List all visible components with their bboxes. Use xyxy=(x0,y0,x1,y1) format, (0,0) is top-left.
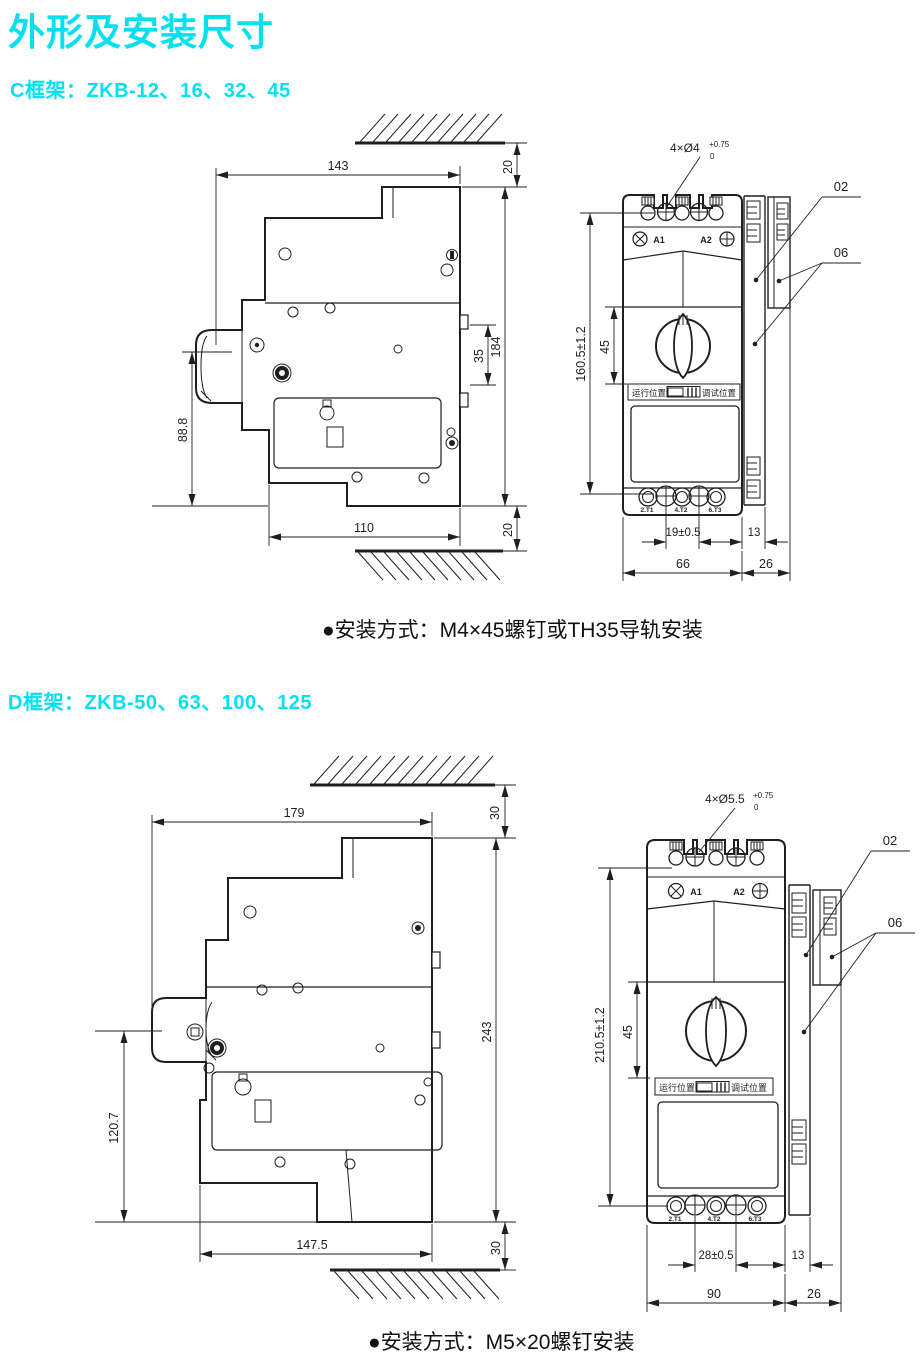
d-dim-knob-offset: 45 xyxy=(621,1025,635,1039)
c-callout-02: 02 xyxy=(754,179,861,282)
d-position-indicator: 运行位置 调试位置 xyxy=(655,1078,773,1095)
d-hole-tol-lower: 0 xyxy=(754,803,759,812)
d-mounting-note: ●安装方式：M5×20螺钉安装 xyxy=(368,1326,634,1356)
c-din-adapter xyxy=(744,196,765,505)
d-coil-terminals: A1 A2 xyxy=(669,884,768,899)
d-callout-06: 06 xyxy=(802,915,915,1034)
c-wall-top xyxy=(355,114,505,143)
c-term-t3: 6.T3 xyxy=(708,507,721,514)
d-label-a2: A2 xyxy=(733,887,745,897)
c-dim-gap-bottom: 20 xyxy=(501,523,515,537)
c-dim-hole-pitch: 19±0.5 xyxy=(665,527,700,539)
c-hole-tol-upper: +0.75 xyxy=(709,140,730,149)
c-dim-width: 66 xyxy=(676,557,690,571)
d-dim-width-top: 179 xyxy=(284,806,305,820)
c-terminals-bottom: 2.T1 4.T2 6.T3 xyxy=(639,486,725,514)
d-side-view: 179 30 243 120.7 147.5 30 xyxy=(95,756,516,1299)
d-label-a1: A1 xyxy=(690,887,702,897)
d-front-view: A1 A2 运行位置 xyxy=(593,791,915,1312)
page: 外形及安装尺寸 C框架：ZKB-12、16、32、45 xyxy=(0,0,921,1370)
c-dim-height: 160.5±1.2 xyxy=(574,326,588,382)
c-hole-tol-lower: 0 xyxy=(710,152,715,161)
c-callout-02-label: 02 xyxy=(834,179,848,194)
c-dim-clip-width: 13 xyxy=(748,527,761,539)
c-callout-06-label: 06 xyxy=(834,245,848,260)
c-dim-gap-top: 20 xyxy=(501,160,515,174)
c-mounting-note: ●安装方式：M4×45螺钉或TH35导轨安装 xyxy=(322,614,703,644)
c-label-a2: A2 xyxy=(700,235,712,245)
d-dim-width: 90 xyxy=(707,1287,721,1301)
c-position-indicator: 运行位置 调试位置 xyxy=(628,384,740,400)
c-wall-bottom xyxy=(355,551,503,580)
c-frame-heading: C框架：ZKB-12、16、32、45 xyxy=(10,74,291,103)
c-front-view: A1 A2 运行位置 xyxy=(574,140,861,581)
d-term-t3: 6.T3 xyxy=(748,1216,761,1223)
d-hole-tol-upper: +0.75 xyxy=(753,791,774,800)
d-nameplate xyxy=(658,1102,778,1188)
c-frame-drawing: 143 20 184 35 88.8 110 xyxy=(0,105,921,597)
c-pos-run-label: 运行位置 xyxy=(632,388,667,398)
d-side-body xyxy=(152,838,442,1222)
c-callout-06: 06 xyxy=(753,245,861,346)
c-hole-label: 4×Ø4 xyxy=(670,141,700,155)
d-dim-clip-width: 13 xyxy=(792,1250,805,1262)
d-rotary-knob xyxy=(686,997,746,1066)
d-dim-hole-pitch: 28±0.5 xyxy=(698,1250,733,1262)
c-side-accessory xyxy=(768,197,790,308)
d-pos-run-label: 运行位置 xyxy=(659,1082,695,1093)
d-dim-height-total: 243 xyxy=(480,1022,494,1043)
c-side-dimensions: 143 20 184 35 88.8 110 xyxy=(152,143,527,551)
d-side-dimensions: 179 30 243 120.7 147.5 30 xyxy=(95,785,516,1270)
c-coil-terminals: A1 A2 xyxy=(633,232,734,246)
d-terminals-bottom: 2.T1 4.T2 6.T3 xyxy=(667,1195,766,1223)
d-dim-gap-bottom: 30 xyxy=(489,1241,503,1255)
d-dim-width-bottom: 147.5 xyxy=(296,1238,327,1252)
d-wall-bottom xyxy=(330,1270,500,1299)
c-nameplate xyxy=(631,406,739,482)
c-dim-height-front: 88.8 xyxy=(176,418,190,442)
d-dim-accessory-width: 26 xyxy=(807,1287,821,1301)
d-callout-06-label: 06 xyxy=(888,915,902,930)
c-dim-width-top: 143 xyxy=(328,159,349,173)
d-callout-02-label: 02 xyxy=(883,833,897,848)
d-term-t1: 2.T1 xyxy=(668,1216,681,1223)
c-dim-height-total: 184 xyxy=(489,337,503,358)
c-dim-rail-height: 35 xyxy=(472,349,486,363)
c-label-a1: A1 xyxy=(653,235,665,245)
c-side-body xyxy=(196,187,468,506)
d-frame-drawing: 179 30 243 120.7 147.5 30 xyxy=(0,750,921,1318)
d-dim-height: 210.5±1.2 xyxy=(593,1007,607,1063)
d-din-adapter xyxy=(789,885,810,1215)
d-dim-height-front: 120.7 xyxy=(107,1112,121,1143)
c-dim-accessory-width: 26 xyxy=(759,557,773,571)
d-hole-label: 4×Ø5.5 xyxy=(705,792,745,806)
c-side-view: 143 20 184 35 88.8 110 xyxy=(152,114,527,580)
c-dim-width-bottom: 110 xyxy=(354,521,374,535)
c-wire-clamps xyxy=(642,197,722,205)
c-dim-knob-offset: 45 xyxy=(598,340,612,354)
page-title: 外形及安装尺寸 xyxy=(8,2,274,56)
d-term-t2: 4.T2 xyxy=(707,1216,720,1223)
c-term-t1: 2.T1 xyxy=(640,507,653,514)
d-wall-top xyxy=(310,756,495,785)
d-pos-test-label: 调试位置 xyxy=(731,1082,767,1093)
c-term-t2: 4.T2 xyxy=(674,507,687,514)
d-dim-gap-top: 30 xyxy=(488,806,502,820)
d-frame-heading: D框架：ZKB-50、63、100、125 xyxy=(8,686,312,715)
c-pos-test-label: 调试位置 xyxy=(702,388,737,398)
c-rotary-knob xyxy=(656,314,710,378)
